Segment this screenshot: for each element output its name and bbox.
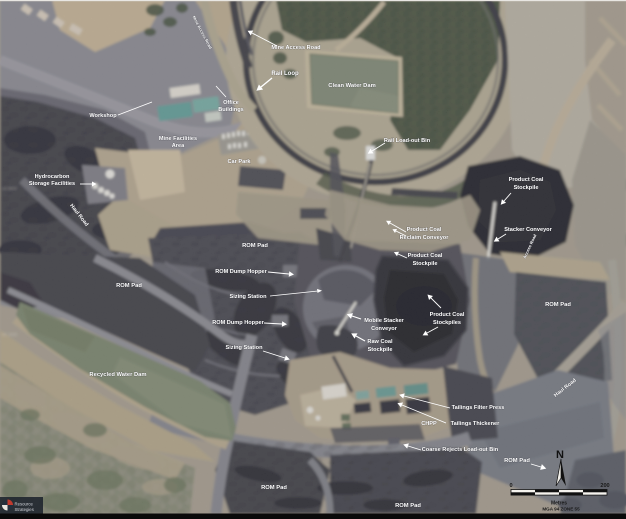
svg-text:ROM Pad: ROM Pad [395,503,421,509]
svg-text:Recycled Water Dam: Recycled Water Dam [89,372,146,378]
svg-text:ROM Dump Hopper: ROM Dump Hopper [212,320,264,326]
svg-text:Mine Access Road: Mine Access Road [271,45,321,51]
svg-text:Sizing Station: Sizing Station [230,294,268,300]
svg-text:Coarse Rejects Load-out Bin: Coarse Rejects Load-out Bin [422,447,499,453]
svg-text:Clean Water Dam: Clean Water Dam [328,83,375,89]
svg-text:Stockpile: Stockpile [514,185,539,191]
svg-text:Rail Loop: Rail Loop [271,71,299,77]
svg-text:ROM Pad: ROM Pad [504,458,530,464]
svg-text:MGA 94 ZONE 55: MGA 94 ZONE 55 [542,507,580,512]
svg-text:Mobile Stacker: Mobile Stacker [364,318,404,324]
svg-text:Stacker Conveyor: Stacker Conveyor [504,227,552,233]
svg-text:ROM Dump Hopper: ROM Dump Hopper [215,269,267,275]
svg-text:Mine Facilities: Mine Facilities [159,136,197,142]
svg-text:Stockpile: Stockpile [413,261,438,267]
svg-text:Reclaim Conveyor: Reclaim Conveyor [400,235,450,241]
svg-text:CHPP: CHPP [421,421,437,427]
svg-text:ROM Pad: ROM Pad [116,283,142,289]
svg-text:ROM Pad: ROM Pad [242,243,268,249]
svg-text:Buildings: Buildings [218,107,243,113]
svg-text:Workshop: Workshop [89,113,117,119]
svg-text:Product Coal: Product Coal [509,177,544,183]
svg-text:Stockpiles: Stockpiles [433,320,461,326]
svg-text:ROM Pad: ROM Pad [261,485,287,491]
svg-text:Product Coal: Product Coal [407,227,442,233]
svg-text:Car Park: Car Park [227,159,251,165]
svg-text:Resource: Resource [15,502,34,507]
svg-text:Sizing Station: Sizing Station [226,345,264,351]
svg-text:Tailings Filter Press: Tailings Filter Press [452,405,505,411]
svg-text:Rail Load-out Bin: Rail Load-out Bin [384,138,431,144]
svg-text:ROM Pad: ROM Pad [545,302,571,308]
svg-text:Conveyor: Conveyor [371,326,398,332]
svg-text:Storage Facilities: Storage Facilities [29,181,75,187]
svg-text:Product Coal: Product Coal [408,253,443,259]
svg-text:Office: Office [223,100,239,106]
svg-text:Area: Area [172,143,185,149]
svg-text:0: 0 [509,483,512,489]
svg-text:Tailings Thickener: Tailings Thickener [451,421,501,427]
svg-text:Stockpile: Stockpile [368,347,393,353]
svg-text:Product Coal: Product Coal [430,312,465,318]
svg-text:Hydrocarbon: Hydrocarbon [35,174,70,180]
svg-text:Raw Coal: Raw Coal [367,339,393,345]
svg-text:Strategies: Strategies [15,507,34,512]
svg-text:200: 200 [600,483,609,489]
svg-text:N: N [556,449,564,461]
